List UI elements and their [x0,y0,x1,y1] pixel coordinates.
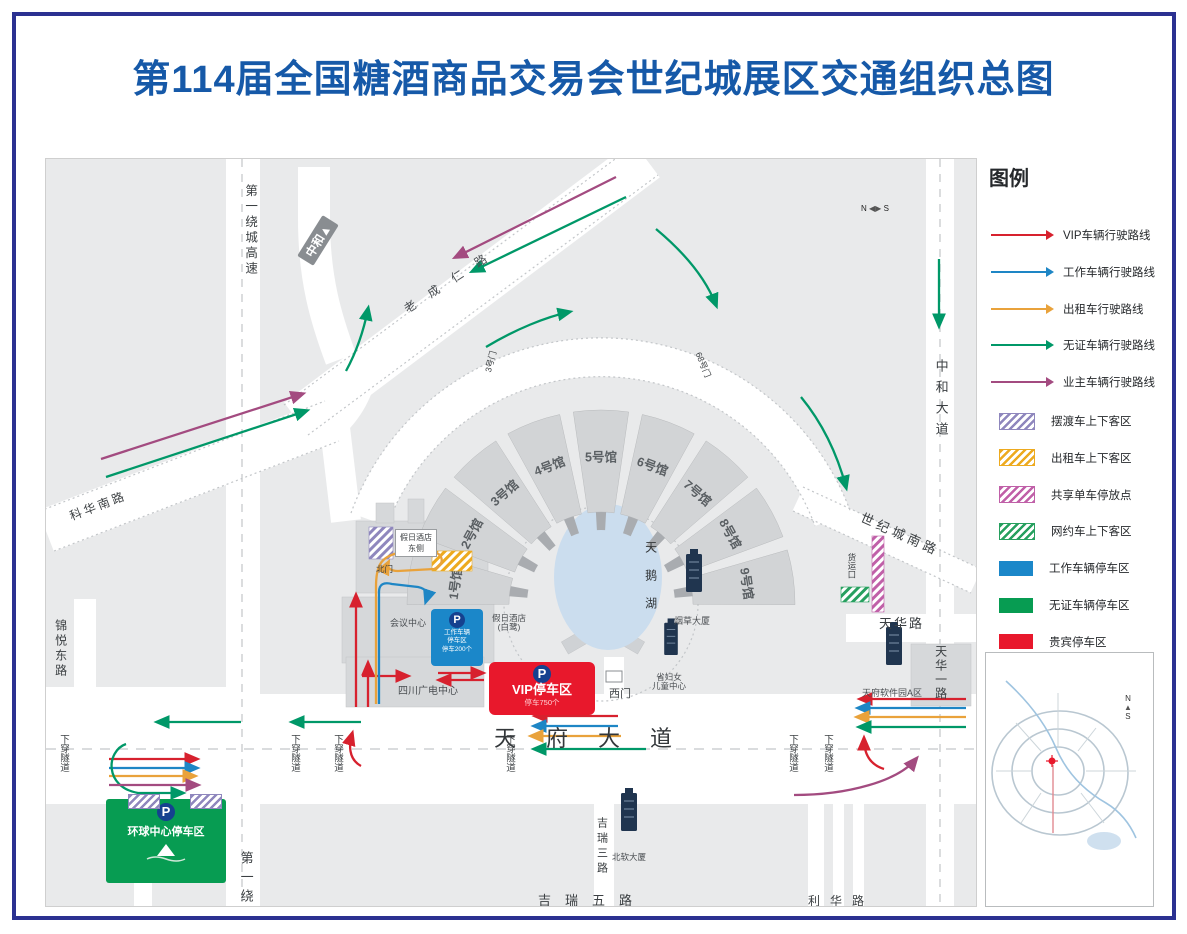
page-title: 第114届全国糖酒商品交易会世纪城展区交通组织总图 [0,48,1187,103]
legend-route-label: 工作车辆行驶路线 [1063,264,1155,280]
roads-layer [46,159,976,906]
legend-zone-item: 无证车辆停车区 [985,595,1130,615]
legend-route-label: 无证车辆行驶路线 [1063,337,1155,353]
road-label-lihua-partial: 利华路 [808,895,874,907]
parking-icon: P [533,665,551,683]
road-label-zhonghe-avenue: 中和大道 [934,359,948,443]
women-children-line2: 儿童中心 [652,681,686,691]
tunnel-label-5: 下穿隧道 [787,734,797,772]
route-arrow-icon [991,234,1047,236]
shuttle-zone-patch [128,794,160,809]
shuttle-zone-patch [190,794,222,809]
legend-zone-item: 工作车辆停车区 [985,558,1130,578]
legend-zone-item: 摆渡车上下客区 [985,411,1132,431]
tower-building-icon [686,549,702,592]
tunnel-label-1: 下穿隧道 [58,734,68,772]
road-label-jirui-fifth-partial: 吉瑞五路 [538,894,646,907]
building-label-conference-center: 会议中心 [390,619,426,628]
global-center-parking-title: 环球中心停车区 [106,823,226,839]
shuttle-stop-line2: 东侧 [408,544,424,553]
global-center-logo [143,842,189,862]
legend-zone-label: 贵宾停车区 [1049,634,1107,650]
legend-route-item: 业主车辆行驶路线 [985,372,1155,392]
road-label-first-ring-partial: 第一绕 [239,851,253,907]
vip-parking-capacity: 停车750个 [489,697,595,708]
shuttle-stop-labelbox: 假日酒店 东侧 [395,529,437,557]
gate-label-north: 北门 [376,565,393,574]
legend-zone-label: 共享单车停放点 [1051,487,1132,503]
compass-needle-icon: ◀▶ [869,204,881,213]
gate-label-west: 西门 [609,689,631,701]
tunnel-label-2: 下穿隧道 [289,734,299,772]
legend-route-label: 出租车行驶路线 [1063,301,1144,317]
work-parking-line3: 停车200个 [442,646,472,653]
building-label-women-children-center: 省妇女儿童中心 [652,673,686,691]
shuttle-stop-line1: 假日酒店 [400,533,432,542]
building-label-scrtv: 四川广电中心 [398,687,458,698]
legend-zone-item: 贵宾停车区 [985,632,1107,652]
legend-rows: VIP车辆行驶路线工作车辆行驶路线出租车行驶路线无证车辆行驶路线业主车辆行驶路线… [985,197,1157,667]
inset-location-marker [1046,755,1058,767]
zone-hatch-swatch [999,523,1035,540]
legend-route-item: VIP车辆行驶路线 [985,225,1151,245]
traffic-map-poster: 第114届全国糖酒商品交易会世纪城展区交通组织总图 [0,0,1187,934]
global-center-parking-box: P 环球中心停车区 [106,799,226,883]
inset-map-graphics [986,653,1151,904]
building-label-beiruan-tower: 北软大厦 [612,853,646,862]
tunnel-label-4: 下穿隧道 [504,734,514,772]
building-label-software-park: 天府软件园A区 [862,689,922,698]
hall-label: 5号馆 [585,449,617,464]
zone-solid-swatch [999,561,1033,576]
road-label-jirui-third: 吉瑞三路 [595,817,607,877]
building-label-holiday-inn: 假日酒店(白鹭) [492,614,526,632]
inset-compass: N ▲ S [1124,695,1132,721]
map-compass: N ◀▶ S [861,205,889,213]
route-arrow-icon [991,381,1047,383]
zone-hatch-swatch [999,486,1035,503]
work-parking-line2: 停车区 [447,637,467,644]
zone-hatch-swatch [999,449,1035,466]
legend-panel: 图例 VIP车辆行驶路线工作车辆行驶路线出租车行驶路线无证车辆行驶路线业主车辆行… [985,162,1157,667]
lake-label: 天鹅湖 [644,541,657,625]
legend-zone-label: 出租车上下客区 [1051,450,1132,466]
inset-compass-south: S [1124,713,1132,722]
route-arrow-icon [991,344,1047,346]
road-label-jinyue-east: 锦悦东路 [54,619,67,679]
legend-zone-item: 网约车上下客区 [985,521,1132,541]
hall-connector [509,586,528,598]
tunnel-label-6: 下穿隧道 [822,734,832,772]
legend-route-label: VIP车辆行驶路线 [1063,227,1151,243]
road-label-tianfu-avenue: 天府大道 [494,727,702,750]
west-gate-marker [606,671,622,682]
zone-solid-swatch [999,634,1033,649]
legend-zone-label: 网约车上下客区 [1051,523,1132,539]
parking-icon: P [449,612,465,628]
vip-parking-title: VIP停车区 [489,683,595,697]
legend-route-item: 出租车行驶路线 [985,299,1144,319]
legend-route-label: 业主车辆行驶路线 [1063,374,1155,390]
route-arrow-icon [991,308,1047,310]
inset-city-map: N ▲ S [985,652,1154,907]
map-graphics: 1号馆2号馆3号馆4号馆5号馆6号馆7号馆8号馆9号馆 [46,159,976,906]
legend-title: 图例 [989,162,1157,191]
legend-route-item: 工作车辆行驶路线 [985,262,1155,282]
road-label-tianhua-first-road: 天华一路 [934,645,947,701]
tower-building-icon [621,788,637,831]
legend-zone-item: 出租车上下客区 [985,448,1132,468]
hall-connector [596,512,606,530]
road-label-first-ring-expressway: 第一绕城高速 [243,184,256,277]
main-map: 1号馆2号馆3号馆4号馆5号馆6号馆7号馆8号馆9号馆 [45,158,977,907]
zone-hatch-swatch [999,413,1035,430]
work-parking-line1: 工作车辆 [444,629,470,636]
compass-south-label: S [884,204,889,213]
road-label-tianhua-road: 天华路 [879,617,924,631]
work-parking-box: P 工作车辆 停车区 停车200个 [431,609,483,666]
legend-zone-item: 共享单车停放点 [985,485,1132,505]
zone-solid-swatch [999,598,1033,613]
legend-route-item: 无证车辆行驶路线 [985,335,1155,355]
building-label-tobacco-tower: 烟草大厦 [674,617,710,626]
route-arrow-icon [991,271,1047,273]
holiday-inn-line2: (白鹭) [498,622,521,632]
legend-zone-label: 摆渡车上下客区 [1051,413,1132,429]
legend-zone-label: 无证车辆停车区 [1049,597,1130,613]
gate-label-freight: 货运口 [847,553,856,579]
tunnel-label-3: 下穿隧道 [332,734,342,772]
compass-north-label: N [861,204,867,213]
legend-zone-label: 工作车辆停车区 [1049,560,1130,576]
vip-parking-box: P VIP停车区 停车750个 [489,662,595,715]
